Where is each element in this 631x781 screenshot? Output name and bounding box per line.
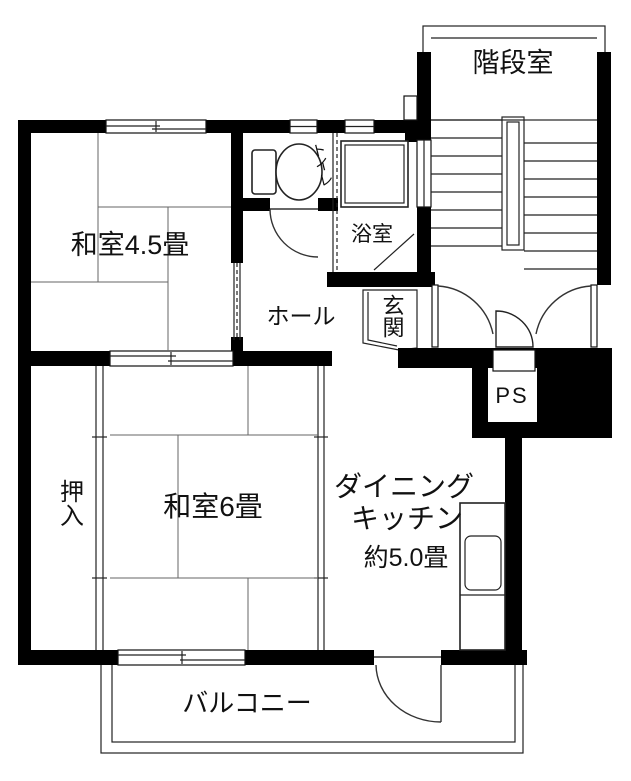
balcony-label: バルコニー xyxy=(182,688,311,718)
ps-threshold xyxy=(493,350,535,371)
window-toilet-top xyxy=(290,120,317,133)
bathtub xyxy=(341,141,408,207)
bath-label: 浴室 xyxy=(351,223,393,246)
stairwell-label: 階段室 xyxy=(473,48,554,78)
floor-plan-drawing: 階段室 トイレ 浴室 ホール 玄関 PS 和室4.5畳 押入 和室6畳 ダイニン… xyxy=(0,0,631,781)
closet-label: 押入 xyxy=(56,479,84,527)
window-room45-top xyxy=(106,120,206,133)
dining-kitchen-size-label: 約5.0畳 xyxy=(364,544,449,572)
japanese-room-45-label: 和室4.5畳 xyxy=(71,230,190,260)
floor-plan: 階段室 トイレ 浴室 ホール 玄関 PS 和室4.5畳 押入 和室6畳 ダイニン… xyxy=(0,0,631,781)
duct-box xyxy=(404,96,417,120)
window-bath-stairwell xyxy=(417,140,431,207)
pipe-space-label: PS xyxy=(495,383,528,408)
window-room6-balcony xyxy=(118,650,245,665)
dining-kitchen-label-line2: キッチン xyxy=(351,503,463,534)
entrance-label: 玄関 xyxy=(380,294,405,338)
hall-label: ホール xyxy=(267,303,336,329)
dining-kitchen-label-line1: ダイニング xyxy=(334,471,474,502)
window-bath-top xyxy=(345,120,374,133)
kitchen-counter xyxy=(460,503,505,650)
fusuma-room45-room6 xyxy=(110,351,233,366)
japanese-room-6-label: 和室6畳 xyxy=(163,491,263,522)
